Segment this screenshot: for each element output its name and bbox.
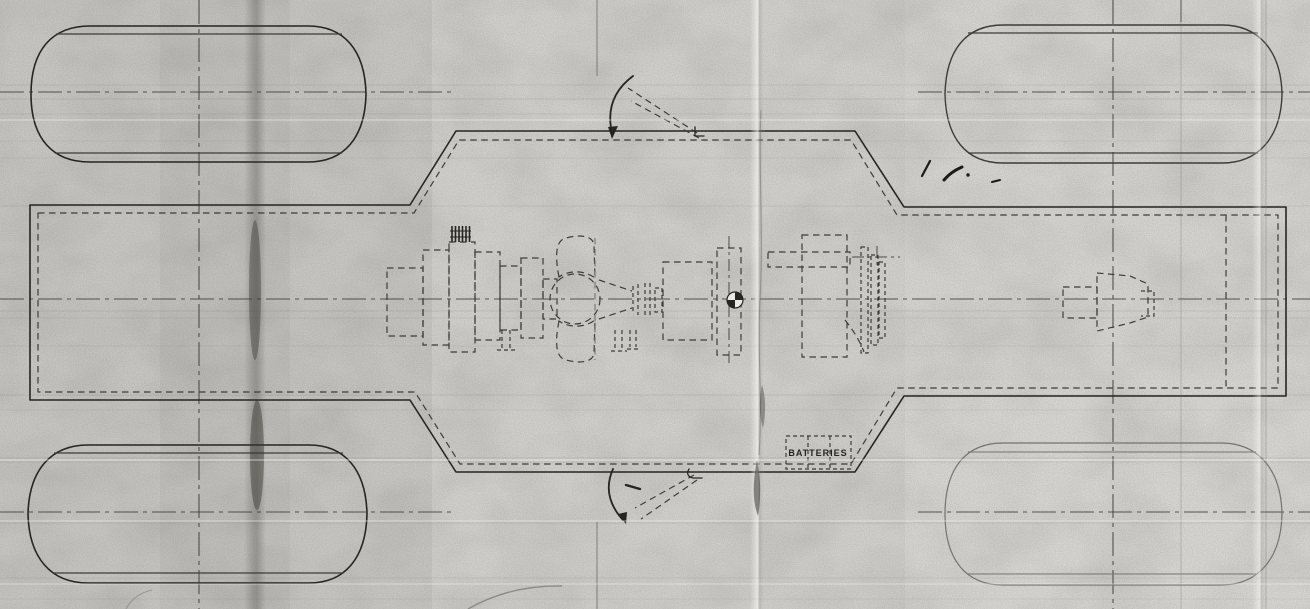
crease-left-smudge-1: [249, 220, 261, 360]
crease-left-smudge-2: [250, 400, 264, 510]
crease-center-light: [750, 0, 766, 609]
scanned-blueprint: BATTERIES: [0, 0, 1310, 609]
batteries-label: BATTERIES: [788, 448, 847, 458]
ink-dot: [966, 173, 969, 176]
center-of-gravity-symbol: [727, 292, 743, 308]
